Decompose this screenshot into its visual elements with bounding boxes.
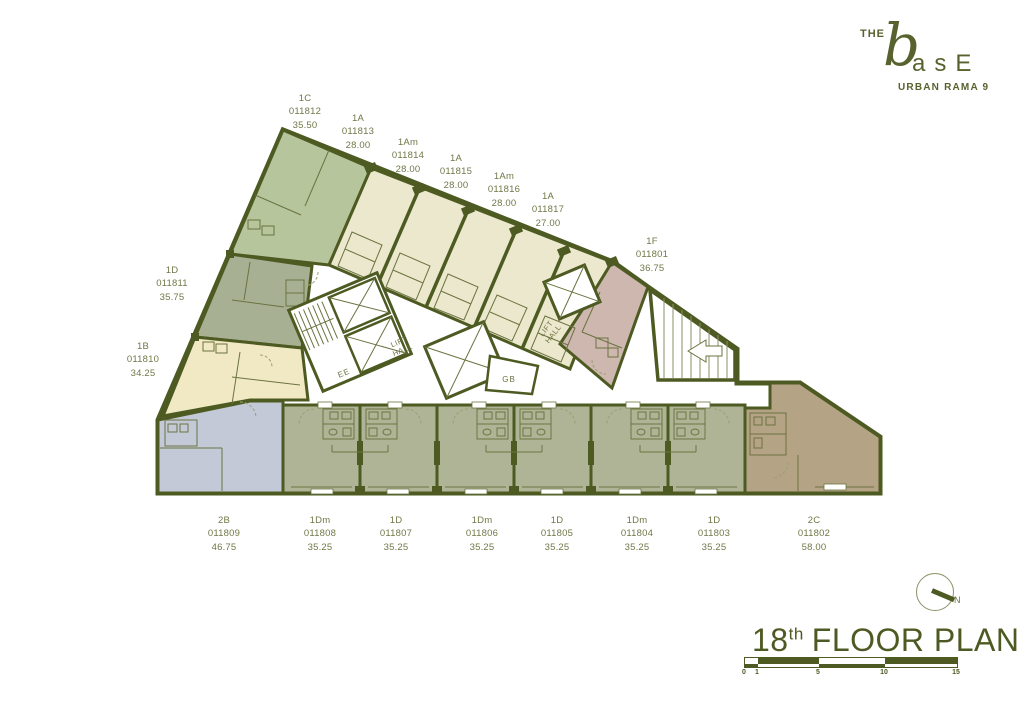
scale-tick: 15 — [952, 669, 960, 676]
scale-segment — [745, 664, 758, 667]
brand-subtitle: URBAN RAMA 9 — [898, 82, 989, 93]
unit-label-1d-left: 1D01181135.75 — [132, 264, 212, 304]
unit-area: 46.75 — [184, 541, 264, 554]
unit-type: 1D — [674, 514, 754, 527]
unit-type: 2B — [184, 514, 264, 527]
unit-area: 35.75 — [132, 291, 212, 304]
unit-label-1d-007: 1D01180735.25 — [356, 514, 436, 554]
unit-type: 1A — [318, 112, 398, 125]
scale-tick: 1 — [755, 669, 759, 676]
unit-label-1f: 1F01180136.75 — [612, 235, 692, 275]
unit-type: 2C — [774, 514, 854, 527]
scale-tick: 10 — [880, 669, 888, 676]
unit-code: 011808 — [280, 527, 360, 540]
unit-type: 1D — [517, 514, 597, 527]
unit-label-1d-005: 1D01180535.25 — [517, 514, 597, 554]
floor-plan-page: EE GB — [0, 0, 1024, 724]
unit-label-2c: 2C01180258.00 — [774, 514, 854, 554]
unit-area: 58.00 — [774, 541, 854, 554]
unit-code: 011810 — [103, 353, 183, 366]
unit-code: 011807 — [356, 527, 436, 540]
floor-number: 18 — [752, 622, 789, 658]
unit-label-1dm-006: 1Dm01180635.25 — [442, 514, 522, 554]
gb-room-label: GB — [502, 375, 516, 384]
unit-area: 27.00 — [508, 217, 588, 230]
unit-label-1dm-004: 1Dm01180435.25 — [597, 514, 677, 554]
floor-ordinal: th — [789, 624, 804, 643]
unit-area: 35.25 — [597, 541, 677, 554]
compass-north-label: N — [954, 595, 961, 605]
unit-area: 35.25 — [356, 541, 436, 554]
scale-tick: 5 — [816, 669, 820, 676]
unit-type: 1Dm — [280, 514, 360, 527]
scale-bar-bottom-row — [745, 664, 957, 667]
unit-area: 35.25 — [674, 541, 754, 554]
scale-segment — [758, 664, 819, 667]
brand-logo: THE b asE URBAN RAMA 9 — [852, 22, 1012, 106]
unit-area: 35.25 — [442, 541, 522, 554]
unit-type: 1Am — [464, 170, 544, 183]
unit-label-2b: 2B01180946.75 — [184, 514, 264, 554]
scale-segment — [885, 664, 957, 667]
unit-label-1a-017: 1A01181727.00 — [508, 190, 588, 230]
scale-segment — [819, 664, 885, 667]
unit-code: 011801 — [612, 248, 692, 261]
unit-type: 1F — [612, 235, 692, 248]
unit-label-1dm-008: 1Dm01180835.25 — [280, 514, 360, 554]
unit-code: 011817 — [508, 203, 588, 216]
unit-area: 34.25 — [103, 367, 183, 380]
unit-code: 011805 — [517, 527, 597, 540]
unit-label-1d-003: 1D01180335.25 — [674, 514, 754, 554]
unit-type: 1Dm — [597, 514, 677, 527]
unit-area: 35.25 — [517, 541, 597, 554]
scale-bar — [744, 657, 958, 668]
unit-type: 1Am — [368, 136, 448, 149]
unit-type: 1A — [416, 152, 496, 165]
unit-code: 011811 — [132, 277, 212, 290]
unit-code: 011802 — [774, 527, 854, 540]
unit-type: 1D — [356, 514, 436, 527]
unit-code: 011803 — [674, 527, 754, 540]
unit-type: 1C — [265, 92, 345, 105]
unit-type: 1B — [103, 340, 183, 353]
brand-the: THE — [860, 28, 885, 40]
unit-code: 011809 — [184, 527, 264, 540]
unit-area: 36.75 — [612, 262, 692, 275]
unit-label-1b: 1B01181034.25 — [103, 340, 183, 380]
right-stair — [650, 290, 735, 380]
unit-code: 011806 — [442, 527, 522, 540]
unit-type: 1D — [132, 264, 212, 277]
unit-type: 1Dm — [442, 514, 522, 527]
unit-code: 011804 — [597, 527, 677, 540]
unit-shape-2b — [158, 401, 283, 493]
floor-title-text: FLOOR PLAN — [812, 622, 1020, 658]
unit-type: 1A — [508, 190, 588, 203]
page-title: 18thFLOOR PLAN — [752, 622, 1020, 659]
scale-tick: 0 — [742, 669, 746, 676]
unit-shape-1d-left — [195, 254, 312, 348]
brand-base-rest: asE — [912, 50, 980, 78]
unit-area: 35.25 — [280, 541, 360, 554]
